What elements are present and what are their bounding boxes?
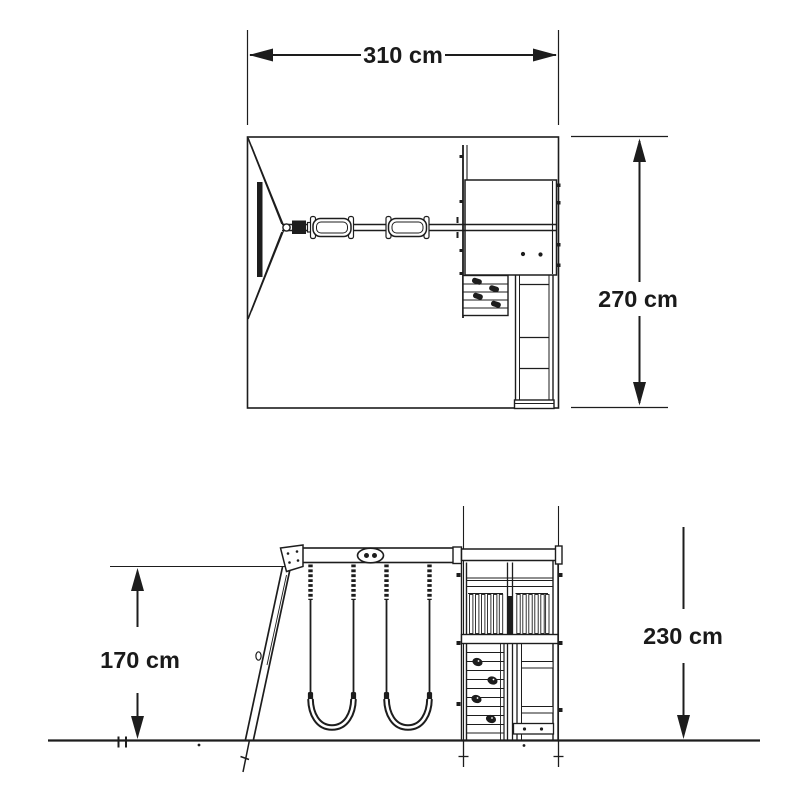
tower-side bbox=[453, 546, 563, 740]
swivel-ring-icon bbox=[283, 224, 290, 231]
dimension-plan-width: 310 cm bbox=[248, 30, 559, 125]
ground-line bbox=[48, 737, 760, 748]
top-rail-end-cap bbox=[556, 546, 563, 564]
dimension-tower-height: 230 cm bbox=[643, 527, 723, 739]
ladder-plan bbox=[515, 276, 555, 409]
beam-hanger-hardware bbox=[283, 221, 313, 235]
plan-view: 310 cm 270 cm bbox=[248, 30, 678, 409]
leg-anchor-stake bbox=[243, 740, 250, 772]
climbing-wall-plan bbox=[463, 276, 508, 316]
plan-width-label: 310 cm bbox=[363, 42, 443, 68]
climbing-wall-side bbox=[467, 644, 505, 741]
swing-seat-plan-2 bbox=[386, 217, 429, 239]
arrow-up-icon bbox=[131, 568, 144, 591]
elevation-view: 170 cm 230 cm bbox=[48, 506, 760, 772]
a-frame-plan bbox=[248, 138, 285, 319]
swing-seat-plan-1 bbox=[311, 217, 354, 239]
arrow-up-icon bbox=[633, 139, 646, 163]
leg-bolt bbox=[256, 652, 261, 660]
swing-1 bbox=[308, 565, 356, 728]
ladder-side bbox=[514, 644, 554, 741]
swing-seat bbox=[387, 699, 430, 728]
tower-height-label: 230 cm bbox=[643, 623, 723, 649]
dimension-plan-depth: 270 cm bbox=[571, 137, 678, 408]
ground-anchor-stakes bbox=[459, 741, 564, 767]
climbing-holds bbox=[470, 656, 499, 724]
beam-bracket bbox=[292, 221, 306, 235]
ladder-rung bbox=[522, 707, 554, 714]
bolt-dot bbox=[538, 252, 542, 256]
swing-set-dimension-diagram: 310 cm 270 cm bbox=[0, 0, 800, 800]
plan-depth-label: 270 cm bbox=[598, 286, 678, 312]
beam-to-tower-bracket bbox=[453, 547, 462, 564]
arrow-right-icon bbox=[533, 49, 557, 62]
arrow-down-icon bbox=[677, 715, 690, 739]
bolt-dot bbox=[521, 252, 525, 256]
brand-logo-icon bbox=[358, 548, 384, 563]
ladder-rung bbox=[522, 662, 554, 669]
arrow-down-icon bbox=[131, 716, 144, 739]
platform-deck bbox=[462, 635, 559, 644]
a-frame-crossbar bbox=[257, 182, 263, 277]
arrow-left-icon bbox=[249, 49, 273, 62]
base-plate bbox=[514, 724, 554, 735]
swing-seat bbox=[311, 699, 354, 728]
tower-top-rail bbox=[462, 549, 557, 561]
a-frame-leg-side bbox=[241, 545, 304, 772]
swing-2 bbox=[384, 565, 432, 728]
beam-corner-bracket bbox=[281, 545, 304, 572]
technical-drawing-page: 310 cm 270 cm bbox=[0, 0, 800, 800]
beam-height-label: 170 cm bbox=[100, 647, 180, 673]
swing-beam-side bbox=[295, 548, 454, 563]
arrow-down-icon bbox=[633, 382, 646, 406]
